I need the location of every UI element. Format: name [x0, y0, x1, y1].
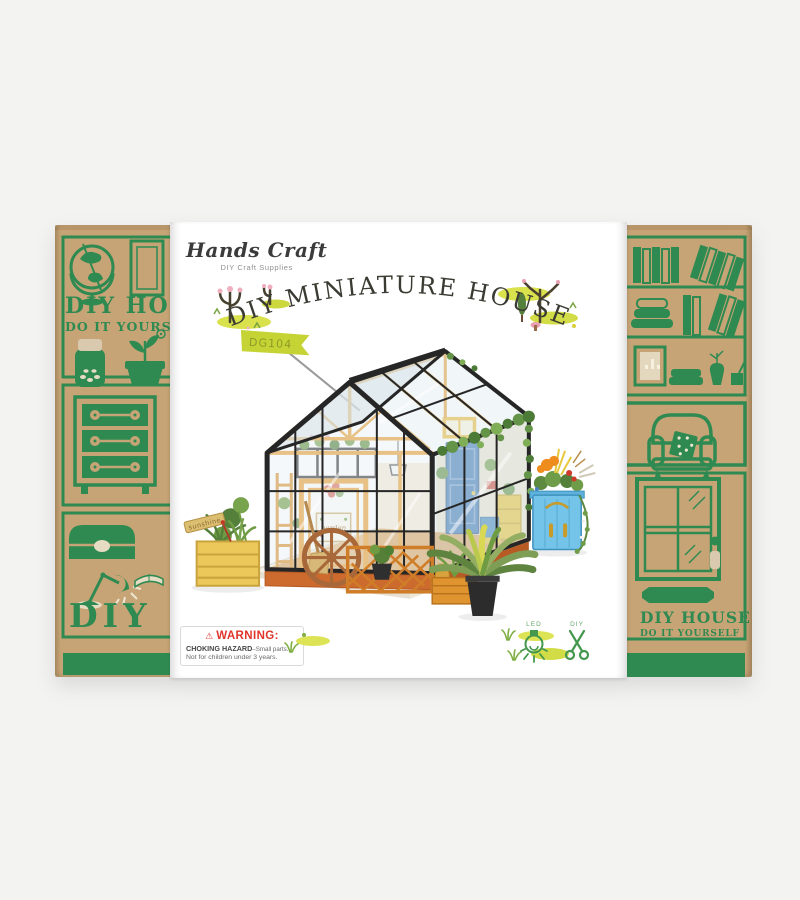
scissors-icon — [564, 629, 590, 663]
right-flap-diy-house-text: DIY HOUSE — [640, 608, 751, 627]
door-latch-icon — [710, 551, 720, 569]
feature-led: LED — [520, 621, 548, 665]
greenhouse-photo: DG104 — [178, 322, 622, 624]
left-flap-diy-text: DIY — [69, 596, 152, 635]
flag-label: DG104 — [249, 336, 293, 351]
led-label: LED — [520, 621, 548, 628]
left-flap-diy-house-text: DIY HOUSE — [65, 293, 170, 319]
left-flap-do-it-yourself-text: DO IT YOURSELF — [65, 319, 170, 334]
bookshelf-row1-icon — [633, 245, 744, 292]
grass-decoration-left-icon — [282, 626, 330, 656]
door-knob-icon — [711, 537, 720, 546]
seed-jar-icon — [75, 339, 105, 387]
bookshelf-row2-icon — [631, 293, 745, 337]
box-right-flap: DIY HOUSE DO IT YOURSELF — [627, 225, 752, 677]
product-photo-page: { "colors":{ "background":"#f3f3f2", "kr… — [0, 0, 800, 900]
bookshelf-row3-icon — [635, 347, 745, 385]
dresser-icon — [75, 397, 155, 494]
box-left-flap: DIY HOUSE DO IT YOURSELF — [55, 225, 170, 677]
feature-diy: DIY — [564, 621, 590, 665]
right-flap-green-band — [627, 653, 745, 677]
right-flap-do-it-yourself-text: DO IT YOURSELF — [640, 629, 740, 639]
wagon-wheel-icon — [304, 530, 358, 584]
open-book-icon — [135, 574, 163, 587]
potted-plant-icon — [125, 330, 165, 385]
cabinet-flowers — [534, 449, 595, 495]
right-flap-print: DIY HOUSE DO IT YOURSELF — [627, 225, 752, 677]
left-flap-green-band — [63, 653, 170, 675]
chest-icon — [69, 525, 135, 559]
left-flap-print: DIY HOUSE DO IT YOURSELF — [55, 225, 170, 677]
plaque-banner-icon — [642, 587, 714, 603]
door-icon — [637, 479, 720, 579]
armchair-icon — [649, 415, 715, 477]
picture-frame-icon — [131, 241, 163, 295]
led-bulb-icon — [520, 629, 548, 665]
box-sleeve: Hands Craft DIY Craft Supplies — [170, 222, 627, 678]
warning-title: WARNING: — [216, 630, 279, 642]
diy-label: DIY — [564, 621, 590, 628]
warning-triangle-icon: ⚠ — [205, 632, 213, 641]
blue-cabinet — [530, 449, 595, 554]
kit-box: DIY HOUSE DO IT YOURSELF — [55, 222, 752, 678]
feature-icons: LED DIY — [520, 621, 590, 665]
